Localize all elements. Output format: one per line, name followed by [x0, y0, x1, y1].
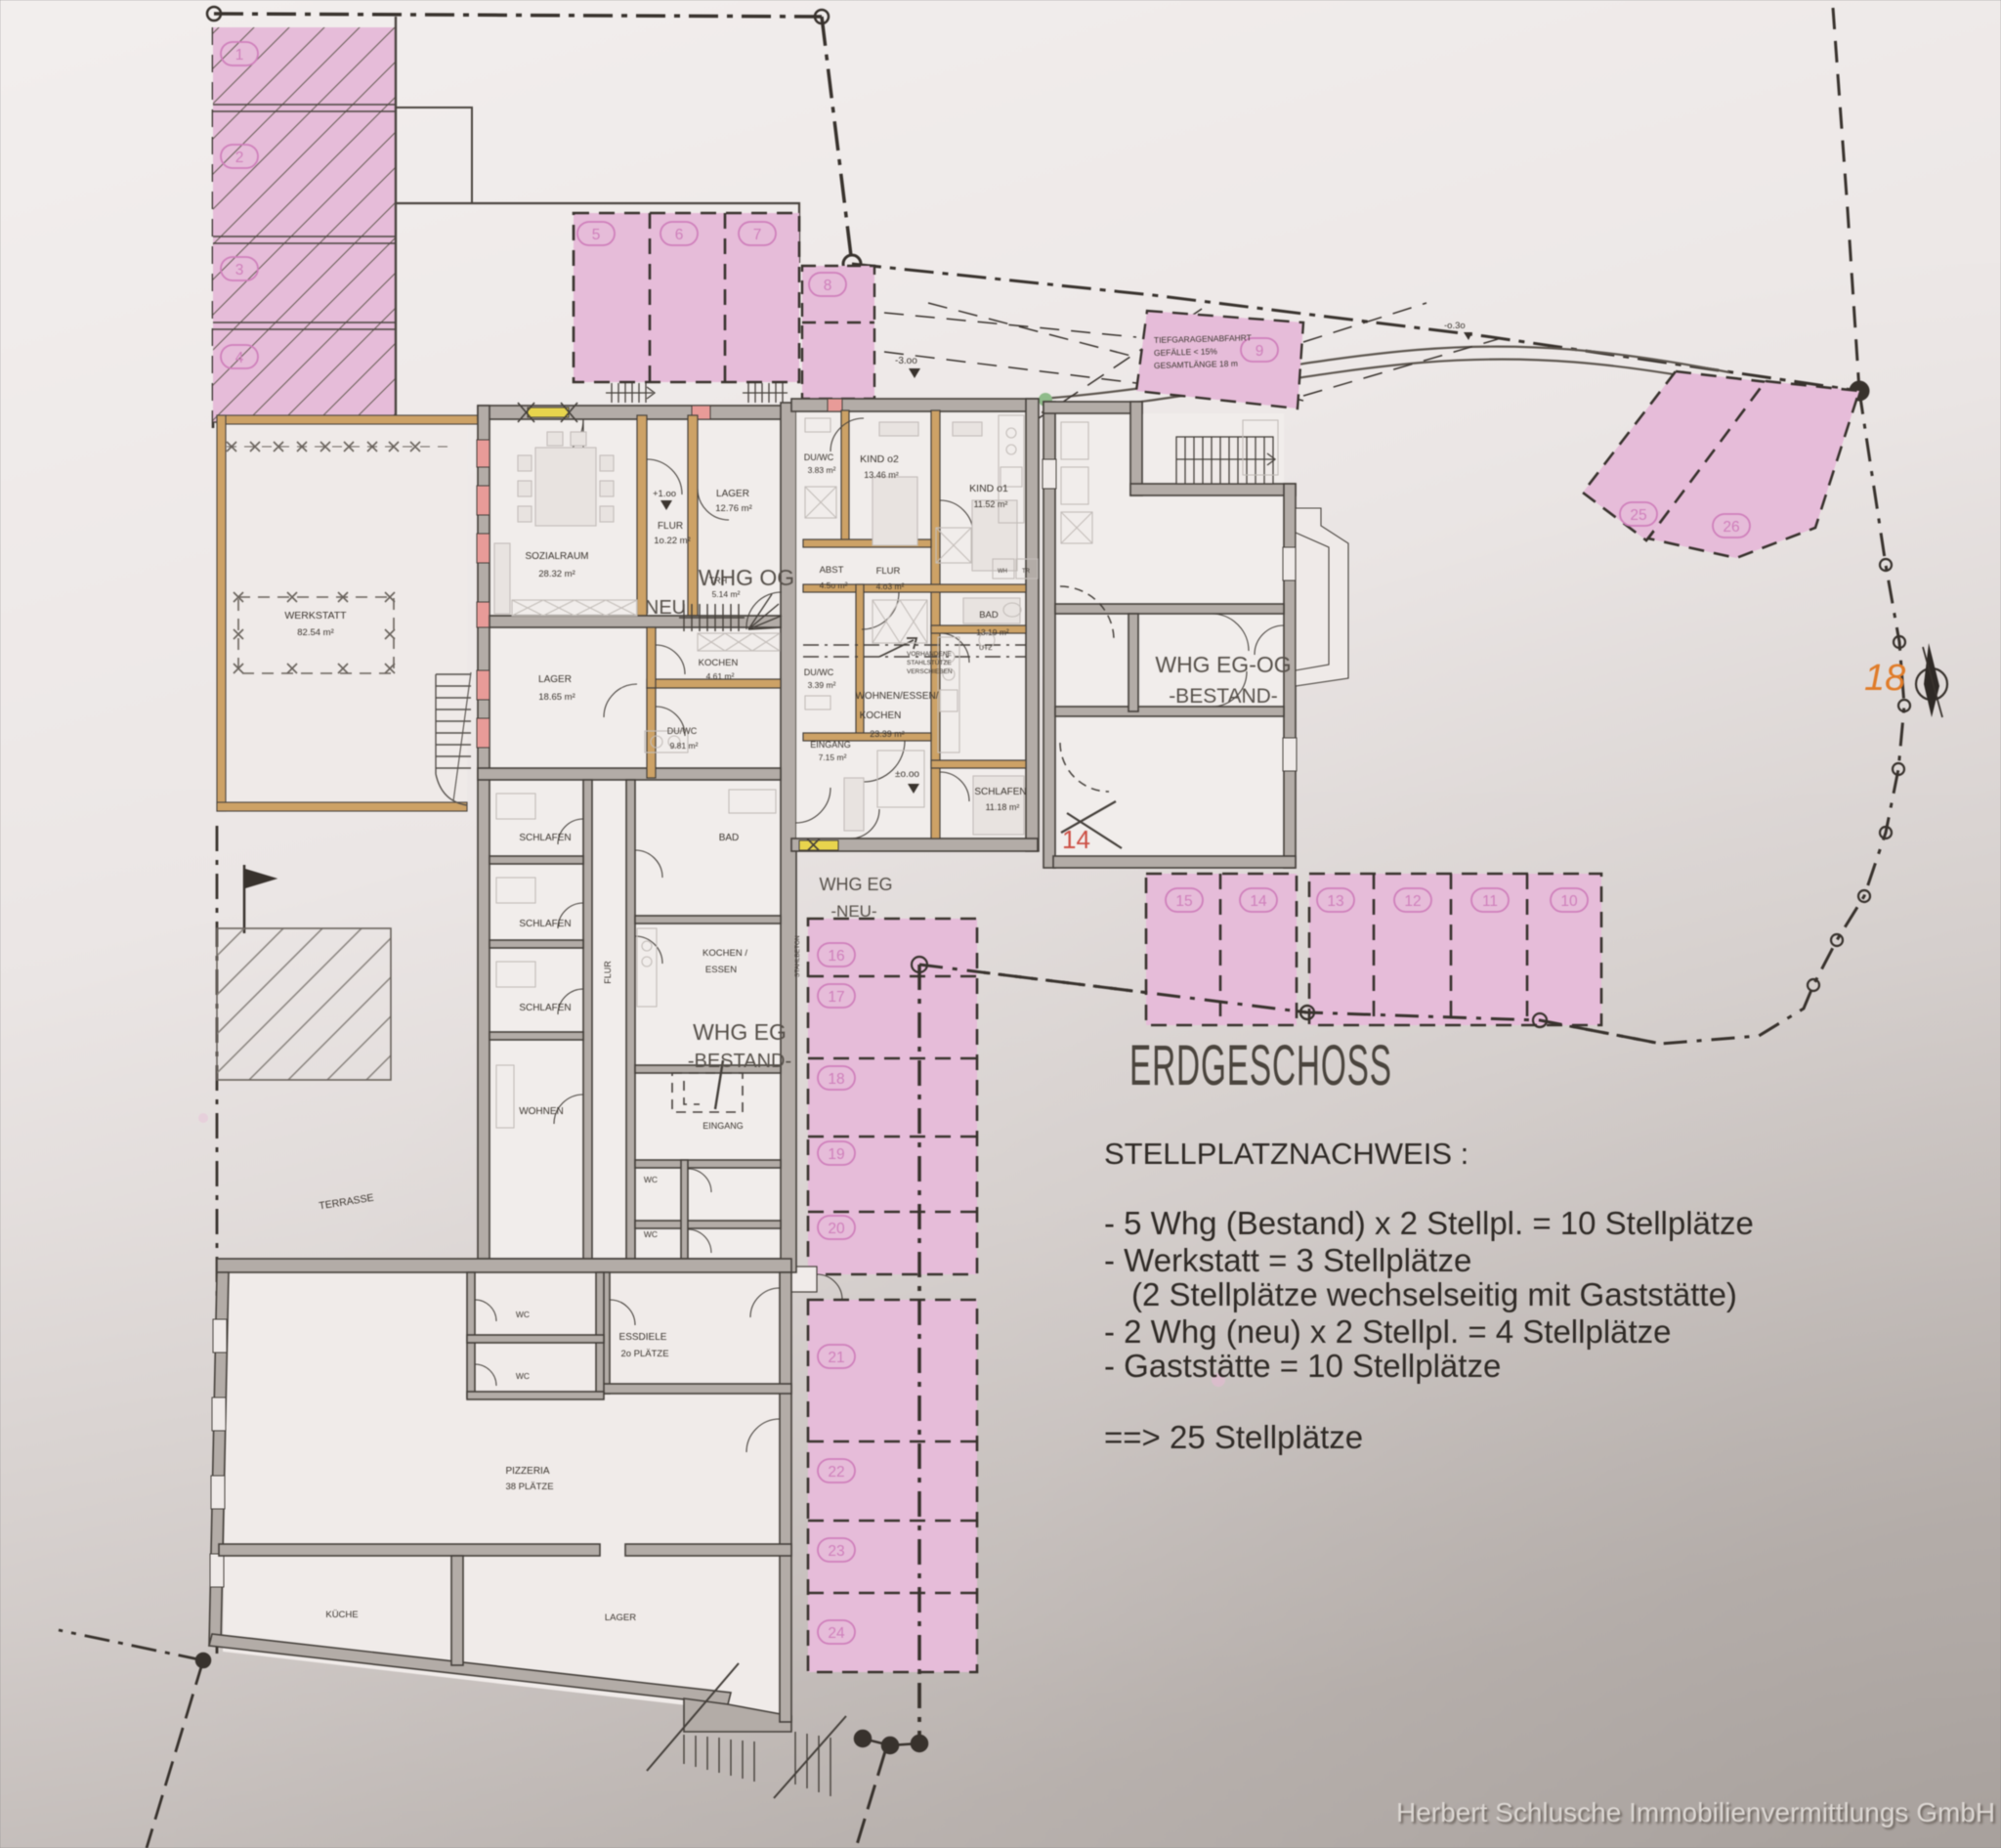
svg-text:3.83 m²: 3.83 m² [808, 465, 836, 475]
svg-text:- Werkstatt = 3 Stellplätze: - Werkstatt = 3 Stellplätze [1104, 1242, 1471, 1278]
svg-text:7: 7 [753, 227, 762, 243]
svg-text:WOHNEN: WOHNEN [519, 1106, 564, 1117]
svg-text:STAHLSTÜTZE: STAHLSTÜTZE [907, 659, 952, 666]
svg-text:STAHLBETON: STAHLBETON [794, 935, 801, 977]
svg-text:KIND o1: KIND o1 [969, 483, 1008, 494]
svg-text:VORHANDENE: VORHANDENE [907, 651, 953, 658]
svg-text:±o.oo: ±o.oo [895, 769, 919, 780]
svg-text:19: 19 [828, 1146, 844, 1163]
svg-text:DU/WC: DU/WC [804, 667, 834, 677]
svg-text:KOCHEN /: KOCHEN / [702, 948, 747, 959]
svg-text:18: 18 [1864, 658, 1905, 699]
svg-text:82.54 m²: 82.54 m² [297, 627, 334, 638]
svg-text:UTZ: UTZ [979, 645, 993, 652]
svg-text:+1.oo: +1.oo [653, 489, 676, 499]
svg-text:WC: WC [644, 1229, 658, 1239]
svg-text:KOCHEN: KOCHEN [699, 658, 739, 668]
svg-text:(2 Stellplätze wechselseitig m: (2 Stellplätze wechselseitig mit Gaststä… [1131, 1276, 1737, 1312]
svg-text:NEU: NEU [645, 597, 686, 619]
svg-text:TR: TR [1022, 569, 1031, 575]
svg-text:DU/WC: DU/WC [804, 452, 834, 462]
svg-text:9: 9 [1256, 343, 1264, 360]
svg-text:STELLPLATZNACHWEIS :: STELLPLATZNACHWEIS : [1104, 1137, 1469, 1171]
svg-text:WERKSTATT: WERKSTATT [284, 610, 347, 622]
svg-text:LAGER: LAGER [716, 489, 749, 499]
svg-text:WC: WC [516, 1310, 530, 1319]
svg-text:38 PLÄTZE: 38 PLÄTZE [505, 1482, 553, 1492]
svg-text:BAD: BAD [979, 610, 999, 621]
svg-text:WH: WH [998, 569, 1007, 575]
svg-text:WC: WC [644, 1175, 658, 1184]
svg-text:14: 14 [1062, 825, 1090, 854]
svg-text:- 5 Whg (Bestand) x 2 Stellpl.: - 5 Whg (Bestand) x 2 Stellpl. = 10 Stel… [1104, 1205, 1754, 1241]
svg-text:7.15 m²: 7.15 m² [819, 752, 847, 762]
svg-text:-o.3o: -o.3o [1444, 321, 1466, 331]
svg-text:LAGER: LAGER [605, 1612, 636, 1623]
svg-text:FLUR: FLUR [876, 566, 901, 577]
svg-text:20: 20 [828, 1221, 845, 1237]
svg-text:ESSDIELE: ESSDIELE [619, 1332, 667, 1343]
svg-text:KÜCHE: KÜCHE [325, 1610, 358, 1620]
svg-text:KOCHEN: KOCHEN [860, 710, 902, 721]
svg-text:SCHLAFEN: SCHLAFEN [974, 787, 1026, 797]
svg-text:KIND o2: KIND o2 [860, 453, 899, 465]
svg-text:2: 2 [235, 150, 244, 166]
svg-text:3.39 m²: 3.39 m² [808, 680, 836, 690]
svg-text:BAD: BAD [719, 833, 740, 843]
svg-text:13.19 m²: 13.19 m² [976, 627, 1009, 637]
svg-text:4.61 m²: 4.61 m² [706, 671, 735, 681]
svg-text:-BESTAND-: -BESTAND- [1169, 685, 1278, 708]
svg-text:ERDGESCHOSS: ERDGESCHOSS [1129, 1035, 1392, 1098]
svg-text:3: 3 [235, 262, 244, 279]
svg-text:17: 17 [828, 989, 844, 1006]
svg-text:-BESTAND-: -BESTAND- [688, 1051, 791, 1072]
svg-text:4.5o m²: 4.5o m² [820, 580, 848, 590]
svg-text:18: 18 [828, 1071, 844, 1088]
svg-text:FLUR: FLUR [603, 961, 613, 984]
svg-text:-NEU-: -NEU- [830, 902, 876, 921]
svg-text:23: 23 [828, 1543, 844, 1560]
svg-text:Herbert Schlusche Immobilienve: Herbert Schlusche Immobilienvermittlungs… [1396, 1797, 1995, 1827]
svg-text:5.14 m²: 5.14 m² [712, 589, 741, 599]
svg-text:10: 10 [1560, 893, 1578, 910]
svg-text:2o PLÄTZE: 2o PLÄTZE [620, 1349, 668, 1359]
svg-text:==> 25 Stellplätze: ==> 25 Stellplätze [1104, 1419, 1363, 1455]
svg-text:18.65 m²: 18.65 m² [538, 692, 575, 703]
svg-text:25: 25 [1630, 507, 1646, 524]
svg-text:SCHLAFEN: SCHLAFEN [519, 833, 571, 843]
svg-text:WC: WC [516, 1371, 530, 1381]
svg-text:PIZZERIA: PIZZERIA [505, 1466, 549, 1477]
svg-text:11: 11 [1482, 893, 1498, 910]
svg-text:TRH: TRH [709, 576, 728, 585]
svg-text:11.18 m²: 11.18 m² [986, 802, 1020, 812]
svg-text:-3.oo: -3.oo [895, 356, 917, 366]
svg-text:9.81 m²: 9.81 m² [670, 741, 699, 751]
svg-text:FLUR: FLUR [658, 521, 683, 532]
svg-text:SCHLAFEN: SCHLAFEN [519, 919, 571, 929]
svg-text:4.o3 m²: 4.o3 m² [876, 581, 905, 591]
svg-text:SOZIALRAUM: SOZIALRAUM [525, 551, 588, 562]
svg-text:ABST: ABST [820, 565, 844, 576]
svg-text:1: 1 [235, 47, 244, 64]
svg-text:LAGER: LAGER [538, 674, 572, 685]
svg-text:22: 22 [828, 1464, 844, 1481]
svg-text:WHG EG: WHG EG [820, 875, 893, 894]
svg-text:SCHLAFEN: SCHLAFEN [519, 1003, 571, 1013]
svg-text:13.46 m²: 13.46 m² [864, 470, 899, 480]
svg-text:14: 14 [1250, 893, 1267, 910]
svg-text:ESSEN: ESSEN [705, 965, 737, 975]
svg-text:8: 8 [824, 278, 832, 294]
svg-text:WHG EG: WHG EG [693, 1019, 787, 1045]
svg-text:15: 15 [1175, 893, 1192, 910]
svg-text:26: 26 [1723, 519, 1739, 536]
svg-text:WHG EG-OG: WHG EG-OG [1155, 652, 1291, 677]
svg-text:EINGANG: EINGANG [702, 1121, 744, 1131]
svg-text:12: 12 [1404, 893, 1421, 910]
svg-text:1o.22 m²: 1o.22 m² [654, 536, 691, 546]
svg-text:DU/WC: DU/WC [667, 726, 698, 736]
svg-text:13: 13 [1327, 893, 1343, 910]
svg-text:- Gaststätte = 10 Stellplätze: - Gaststätte = 10 Stellplätze [1104, 1348, 1501, 1384]
svg-text:6: 6 [675, 227, 684, 243]
svg-text:23.39 m²: 23.39 m² [870, 729, 905, 739]
svg-text:4: 4 [235, 350, 244, 366]
svg-text:16: 16 [828, 948, 844, 965]
svg-text:GEFÄLLE < 15%: GEFÄLLE < 15% [1154, 346, 1218, 358]
svg-text:EINGANG: EINGANG [810, 740, 851, 750]
svg-text:5: 5 [592, 227, 601, 243]
svg-text:21: 21 [828, 1350, 844, 1366]
svg-text:11.52 m²: 11.52 m² [974, 499, 1008, 509]
svg-text:- 2 Whg (neu) x 2 Stellpl. = 4: - 2 Whg (neu) x 2 Stellpl. = 4 Stellplät… [1104, 1313, 1672, 1350]
svg-text:24: 24 [828, 1625, 845, 1642]
svg-text:12.76 m²: 12.76 m² [715, 503, 752, 514]
svg-text:28.32 m²: 28.32 m² [538, 569, 575, 580]
svg-text:WOHNEN/ESSEN/: WOHNEN/ESSEN/ [855, 691, 938, 702]
svg-text:VERSCHIEBEN: VERSCHIEBEN [907, 668, 953, 675]
